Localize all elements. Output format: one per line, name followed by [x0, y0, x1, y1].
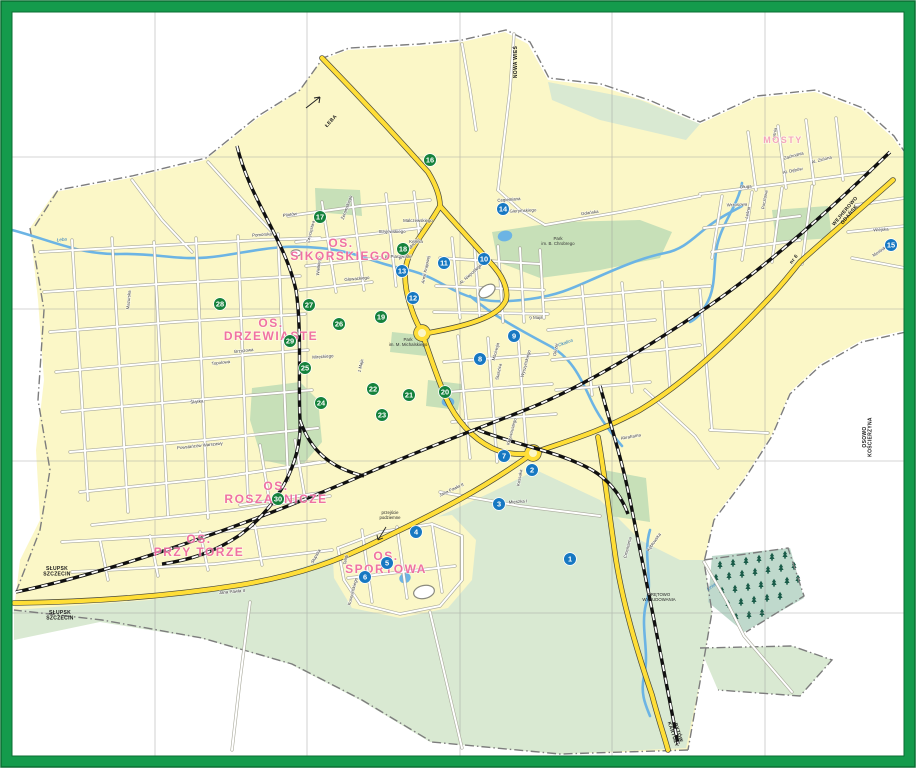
street-label: 9 Maja [529, 315, 543, 321]
marker-number: 22 [369, 385, 377, 394]
map-marker-1: 1 [564, 553, 577, 566]
map-marker-23: 23 [376, 409, 389, 422]
map-marker-9: 9 [508, 330, 521, 343]
map-marker-27: 27 [303, 299, 316, 312]
map-marker-7: 7 [498, 450, 511, 463]
marker-number: 11 [440, 259, 448, 268]
map-marker-18: 18 [397, 243, 410, 256]
map-marker-15: 15 [885, 239, 898, 252]
marker-number: 5 [385, 559, 389, 568]
park-area [772, 206, 832, 242]
map-marker-26: 26 [333, 318, 346, 331]
destination-label: SŁUPSKSZCZECIN [46, 610, 73, 622]
marker-number: 20 [441, 388, 449, 397]
marker-number: 30 [274, 495, 282, 504]
map-marker-5: 5 [381, 557, 394, 570]
marker-number: 25 [301, 364, 309, 373]
map-marker-24: 24 [315, 397, 328, 410]
marker-number: 29 [286, 337, 294, 346]
marker-number: 13 [398, 267, 406, 276]
map-marker-19: 19 [375, 311, 388, 324]
marker-number: 9 [512, 332, 516, 341]
map-marker-17: 17 [314, 211, 327, 224]
map-marker-6: 6 [359, 571, 372, 584]
note-label: przejściepodziemne [379, 510, 401, 520]
destination-label: NOWA WIEŚ [512, 46, 519, 79]
map-marker-2: 2 [526, 464, 539, 477]
city-map-page: PomorskaMalczewskiegoStryjewskiegoKeller… [0, 0, 916, 768]
marker-number: 6 [363, 573, 367, 582]
marker-number: 23 [378, 411, 386, 420]
destination-label: SŁUPSKSZCZECIN [43, 566, 70, 578]
map-marker-25: 25 [299, 362, 312, 375]
marker-number: 10 [480, 255, 488, 264]
marker-number: 18 [399, 245, 407, 254]
map-marker-22: 22 [367, 383, 380, 396]
pond [498, 231, 511, 241]
map-marker-13: 13 [396, 265, 409, 278]
marker-number: 1 [568, 555, 572, 564]
city-map: PomorskaMalczewskiegoStryjewskiegoKeller… [0, 0, 916, 768]
marker-number: 27 [305, 301, 313, 310]
marker-number: 7 [502, 452, 506, 461]
marker-number: 3 [497, 500, 501, 509]
map-marker-29: 29 [284, 335, 297, 348]
map-marker-4: 4 [410, 526, 423, 539]
map-marker-16: 16 [424, 154, 437, 167]
marker-number: 24 [317, 399, 326, 408]
street-label: Długa [740, 184, 752, 190]
marker-number: 19 [377, 313, 385, 322]
marker-number: 28 [216, 300, 224, 309]
map-marker-8: 8 [474, 353, 487, 366]
map-marker-30: 30 [272, 493, 285, 506]
marker-number: 8 [478, 355, 482, 364]
map-marker-12: 12 [407, 292, 420, 305]
map-marker-10: 10 [478, 253, 491, 266]
marker-number: 14 [499, 205, 508, 214]
street-label: Malczewskiego [403, 218, 433, 223]
marker-number: 21 [405, 391, 413, 400]
district-label: MOSTY [763, 135, 803, 145]
map-marker-21: 21 [403, 389, 416, 402]
marker-number: 12 [409, 294, 417, 303]
map-marker-3: 3 [493, 498, 506, 511]
marker-number: 17 [316, 213, 324, 222]
map-marker-11: 11 [438, 257, 451, 270]
map-marker-20: 20 [439, 386, 452, 399]
map-marker-28: 28 [214, 298, 227, 311]
marker-number: 16 [426, 156, 434, 165]
marker-number: 2 [530, 466, 534, 475]
marker-number: 15 [887, 241, 895, 250]
map-marker-14: 14 [497, 203, 510, 216]
street-label: Stryjewskiego [378, 229, 406, 234]
marker-number: 26 [335, 320, 343, 329]
